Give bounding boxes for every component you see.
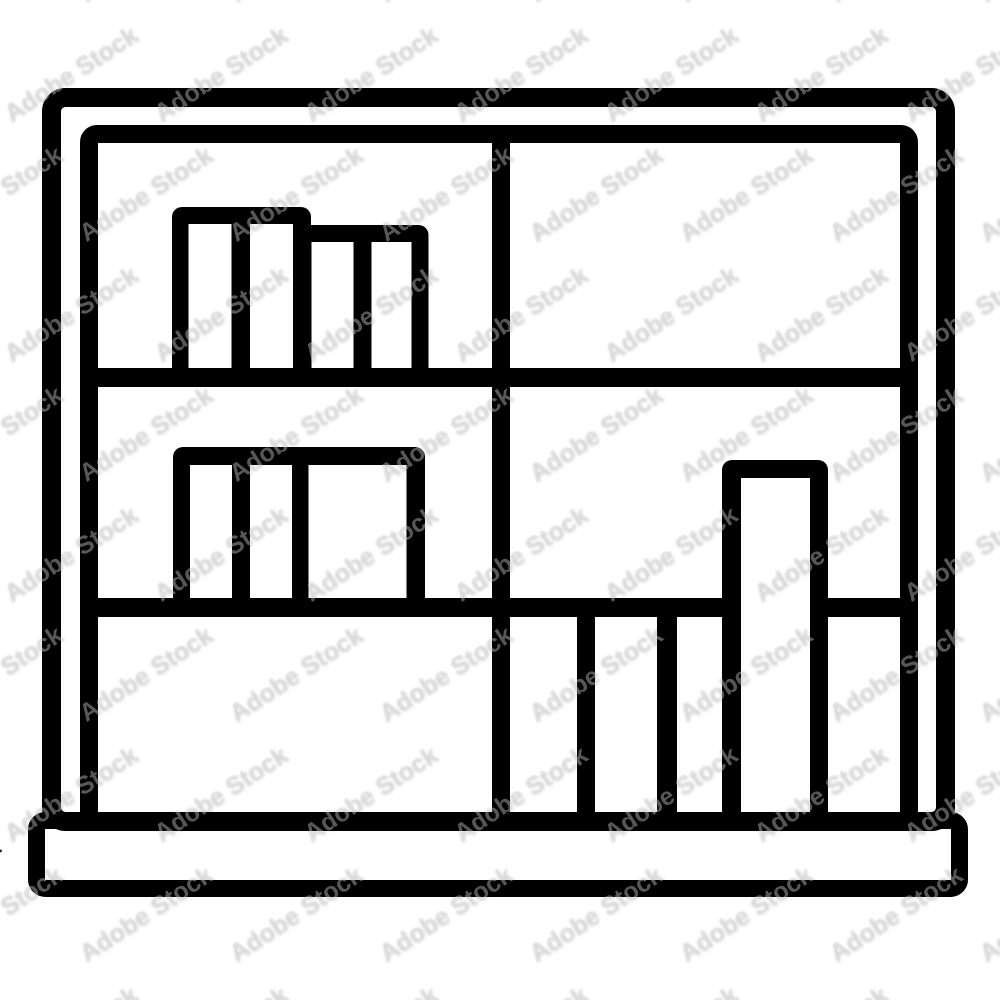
book-group-top-left-b	[293, 225, 429, 387]
book-window	[190, 465, 232, 598]
book-window	[189, 224, 232, 368]
book-window	[312, 242, 354, 368]
book-window	[372, 242, 412, 368]
book-window	[250, 465, 292, 598]
book-group-top-left-a	[172, 207, 311, 387]
watermark-id-text: Adobe Stock | #1325416394	[0, 707, 3, 994]
book-window	[741, 478, 810, 812]
bookshelf-center-divider	[492, 134, 510, 831]
book-window	[309, 465, 407, 598]
book-spine-bottom-right-2	[657, 598, 677, 826]
book-tall-right	[722, 460, 828, 831]
bookshelf-icon	[0, 0, 1000, 1000]
stock-image-canvas: Adobe StockAdobe StockAdobe StockAdobe S…	[0, 0, 1000, 1000]
book-group-middle-left	[173, 447, 425, 617]
book-window	[250, 224, 293, 368]
book-spine-bottom-right-1	[577, 598, 595, 826]
